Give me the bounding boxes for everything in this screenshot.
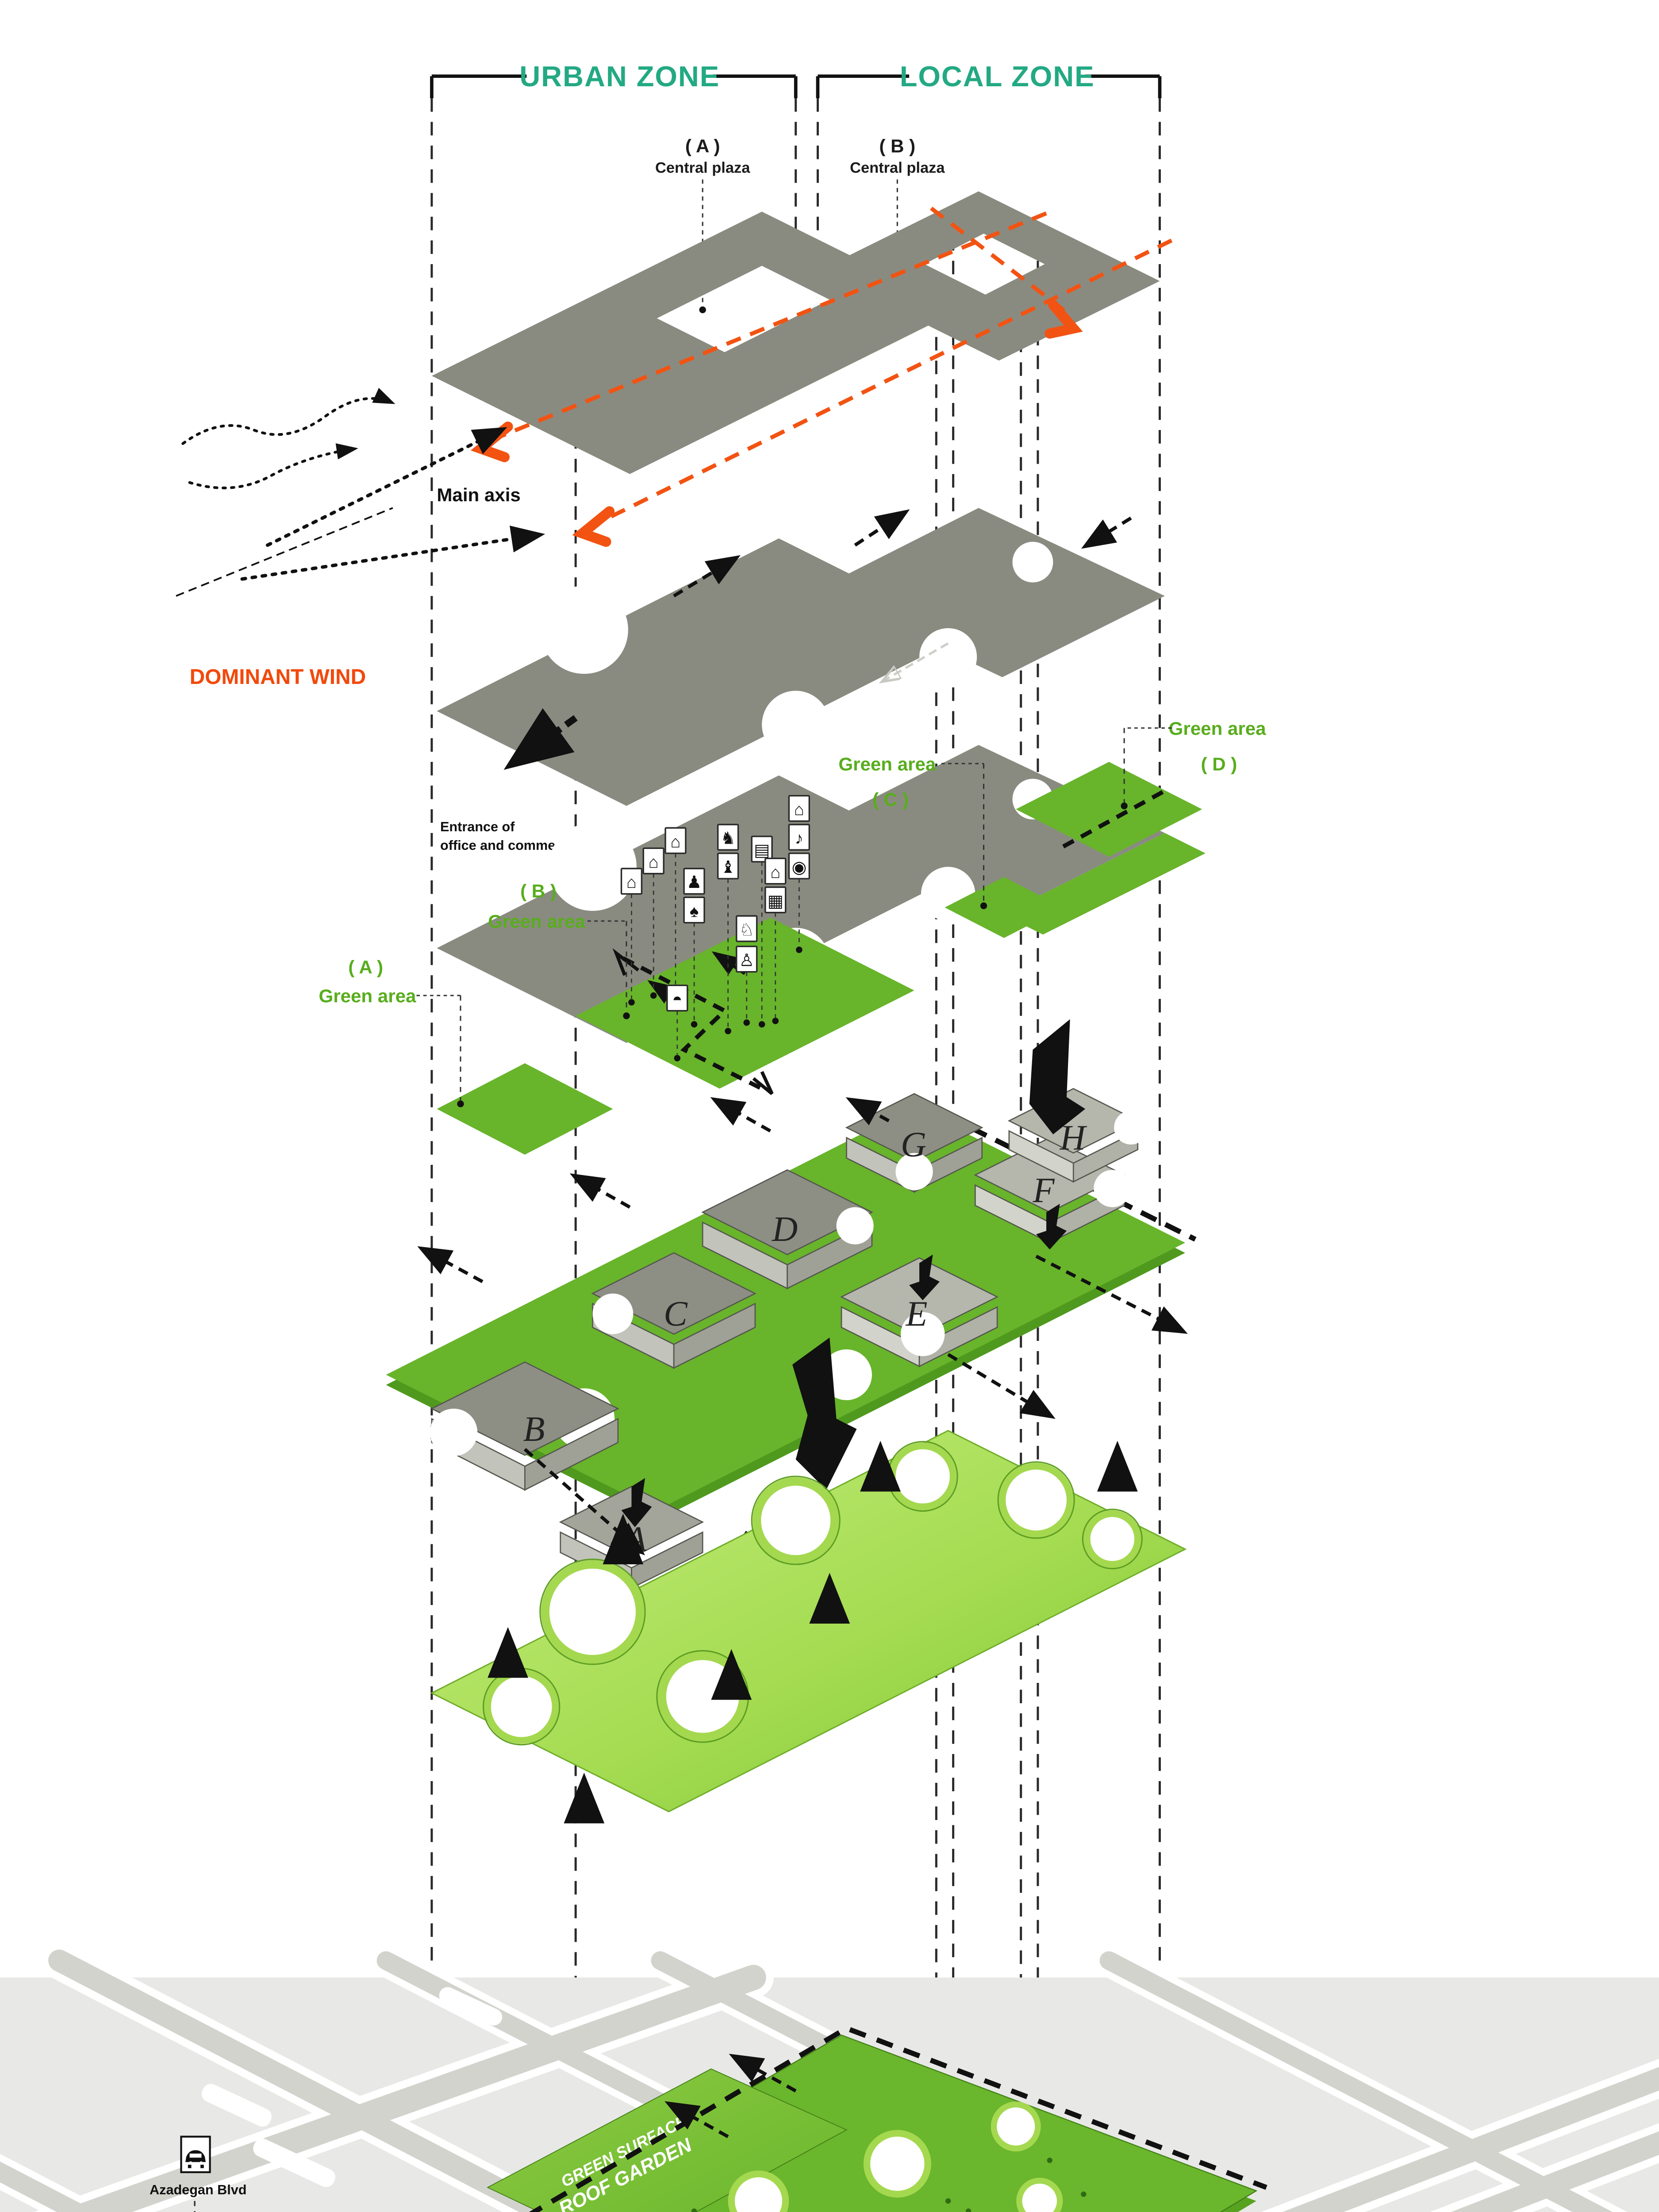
svg-text:◉: ◉ <box>792 858 806 877</box>
building-letter: D <box>772 1210 798 1249</box>
plaza-a-label: Central plaza <box>655 159 750 176</box>
exploded-axon-diagram: URBAN ZONE LOCAL ZONE ( A ) Central plaz… <box>0 0 1659 2212</box>
activity-icon-people: ♟ <box>684 868 704 894</box>
blvd-label-1: Azadegan Blvd <box>150 2182 246 2197</box>
building-letter: G <box>901 1125 926 1164</box>
svg-text:⌂: ⌂ <box>649 853 659 872</box>
green-a-tag: ( A ) <box>348 957 383 978</box>
main-axis-label: Main axis <box>437 484 520 505</box>
activity-icon-volleyball: ♘ <box>737 916 757 941</box>
plaza-b-tag: ( B ) <box>879 135 915 156</box>
diagram-canvas: URBAN ZONE LOCAL ZONE ( A ) Central plaz… <box>0 0 1659 2212</box>
building-letter: F <box>1032 1171 1055 1210</box>
svg-text:⌂: ⌂ <box>770 863 780 882</box>
activity-icon-house: ⌂ <box>765 858 786 883</box>
green-b-tag: ( B ) <box>520 880 557 901</box>
svg-text:♟: ♟ <box>687 873 702 892</box>
svg-text:◓: ◓ <box>672 990 682 1009</box>
wind-flow-lines <box>183 399 393 488</box>
activity-icon-dancer: ♞ <box>718 825 738 850</box>
plaza-a-tag: ( A ) <box>685 135 720 156</box>
green-d-tag: ( D ) <box>1201 753 1237 774</box>
green-c-label: Green area <box>838 753 936 774</box>
svg-text:▤: ▤ <box>754 841 770 860</box>
plaza-b-label: Central plaza <box>850 159 945 176</box>
activity-icon-house: ⌂ <box>789 796 809 821</box>
building-letter: C <box>664 1294 688 1334</box>
svg-text:♠: ♠ <box>690 902 699 921</box>
green-c-tag: ( C ) <box>872 789 909 810</box>
svg-text:♙: ♙ <box>739 951 754 970</box>
dominant-wind-label: DOMINANT WIND <box>190 665 366 689</box>
urban-zone-title: URBAN ZONE <box>519 60 720 92</box>
svg-text:♘: ♘ <box>739 920 754 939</box>
svg-text:⌂: ⌂ <box>794 800 804 819</box>
layer-green-areas: ( B ) Green area ( A ) Green area Green … <box>319 718 1267 1155</box>
green-d-label: Green area <box>1169 718 1266 739</box>
entrance-label-1: Entrance of <box>440 819 515 834</box>
building-letter: B <box>523 1409 545 1449</box>
building-letter: E <box>905 1294 927 1334</box>
svg-text:♞: ♞ <box>720 829 735 848</box>
svg-text:⌂: ⌂ <box>670 832 680 851</box>
wind-line <box>176 508 393 596</box>
svg-text:▦: ▦ <box>768 891 783 910</box>
svg-text:♪: ♪ <box>795 829 803 848</box>
diagram-page: URBAN ZONE LOCAL ZONE ( A ) Central plaz… <box>0 0 1659 2212</box>
green-a-label: Green area <box>319 986 416 1006</box>
activity-icon-music: ♪ <box>789 825 809 850</box>
local-zone-title: LOCAL ZONE <box>900 60 1095 92</box>
svg-text:♝: ♝ <box>720 858 735 877</box>
green-b-label: Green area <box>488 911 585 932</box>
layer-canopy <box>432 1431 1185 1812</box>
site-map: GREEN SURFACE ROOF GARDEN Azadegan Blvd <box>0 1961 1659 2212</box>
svg-text:⌂: ⌂ <box>626 873 637 892</box>
green-area-a-plane <box>437 1063 613 1155</box>
zone-header: URBAN ZONE LOCAL ZONE <box>432 60 1160 98</box>
